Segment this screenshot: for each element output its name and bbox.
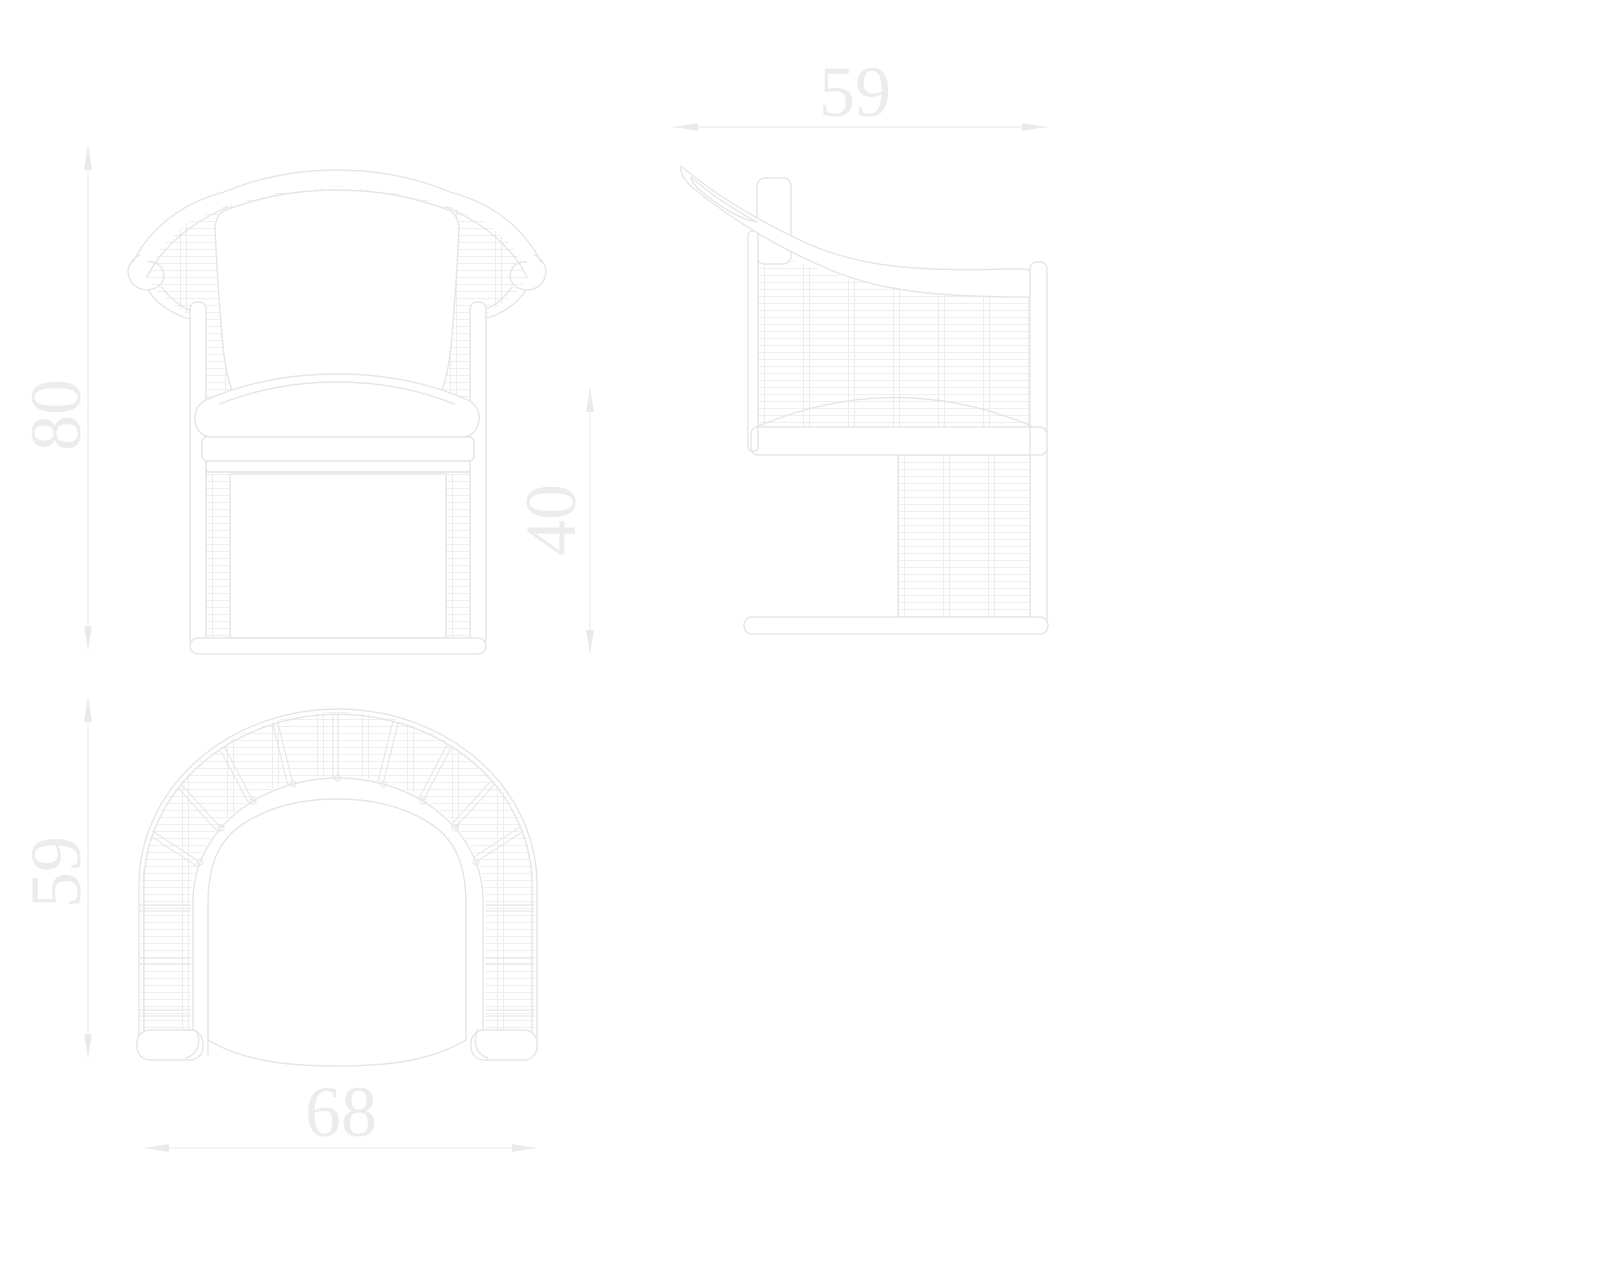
arrowhead: [84, 626, 92, 650]
front-bottom-rail: [190, 638, 486, 654]
front-seat-band: [202, 437, 474, 461]
front-leg-opening: [230, 474, 446, 638]
plan-seat: [208, 799, 466, 1066]
side-seat-band: [751, 427, 1047, 455]
side-armrest-curve: [681, 166, 1038, 297]
side-seat-arc: [756, 398, 1034, 428]
arrowhead: [145, 1144, 169, 1152]
dimension-label-plan-depth: 59: [16, 832, 96, 912]
drawing-linework: [0, 0, 1600, 1280]
side-foot-bar: [744, 617, 1048, 634]
arrowhead: [1022, 123, 1046, 131]
dimension-label-overall-width: 68: [281, 1072, 401, 1152]
front-left-post: [190, 302, 206, 646]
front-right-post: [470, 302, 486, 646]
plan-left-foot: [137, 1030, 203, 1060]
arrowhead: [586, 388, 594, 412]
overall-height-value: 80: [20, 379, 92, 451]
plan-depth-value: 59: [20, 836, 92, 908]
arrowhead: [512, 1144, 536, 1152]
dimension-label-overall-height: 80: [16, 375, 96, 455]
arrowhead: [84, 1034, 92, 1058]
side-depth-value: 59: [819, 56, 891, 128]
overall-width-value: 68: [305, 1076, 377, 1148]
dimension-label-side-depth: 59: [795, 52, 915, 132]
plan-right-foot: [471, 1030, 537, 1060]
arrowhead: [674, 123, 698, 131]
seat-height-value: 40: [515, 484, 587, 556]
side-front-post: [1030, 262, 1047, 628]
side-back-edge: [748, 231, 758, 451]
arrowhead: [84, 698, 92, 722]
dimension-label-seat-height: 40: [511, 480, 591, 560]
top-view: [137, 709, 537, 1066]
technical-drawing-canvas: 80 59 40 59 68: [0, 0, 1600, 1280]
front-right-armrest-scroll: [510, 255, 546, 290]
front-view: [128, 170, 546, 654]
side-view: [681, 166, 1048, 634]
arrowhead: [84, 146, 92, 170]
front-left-armrest-scroll: [128, 255, 164, 290]
arrowhead: [586, 630, 594, 654]
backrest-cushion: [215, 190, 459, 394]
